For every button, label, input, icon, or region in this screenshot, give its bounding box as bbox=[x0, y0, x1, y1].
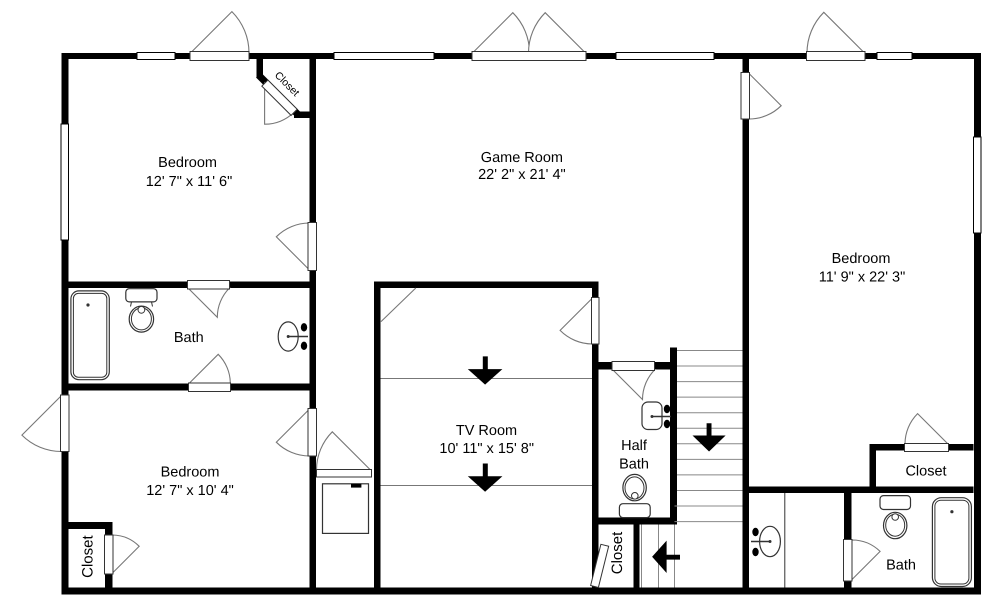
svg-text:12' 7" x 10' 4": 12' 7" x 10' 4" bbox=[146, 483, 234, 499]
svg-text:TV Room: TV Room bbox=[456, 423, 517, 439]
svg-text:10' 11" x 15' 8": 10' 11" x 15' 8" bbox=[439, 441, 534, 457]
svg-text:11' 9" x 22' 3": 11' 9" x 22' 3" bbox=[819, 270, 906, 286]
svg-text:Bath: Bath bbox=[619, 457, 649, 473]
svg-text:Half: Half bbox=[621, 438, 648, 454]
svg-text:Bedroom: Bedroom bbox=[832, 251, 891, 267]
svg-text:Bedroom: Bedroom bbox=[161, 465, 220, 481]
svg-text:Bath: Bath bbox=[886, 558, 916, 574]
svg-text:Bath: Bath bbox=[174, 330, 204, 346]
svg-text:Game Room: Game Room bbox=[481, 150, 563, 166]
svg-text:Bedroom: Bedroom bbox=[158, 155, 217, 171]
svg-text:Closet: Closet bbox=[905, 464, 946, 480]
svg-text:12' 7" x 11' 6": 12' 7" x 11' 6" bbox=[146, 174, 233, 190]
svg-text:22' 2" x 21' 4": 22' 2" x 21' 4" bbox=[478, 167, 566, 183]
svg-text:Closet: Closet bbox=[609, 531, 626, 574]
svg-text:Closet: Closet bbox=[79, 535, 96, 578]
